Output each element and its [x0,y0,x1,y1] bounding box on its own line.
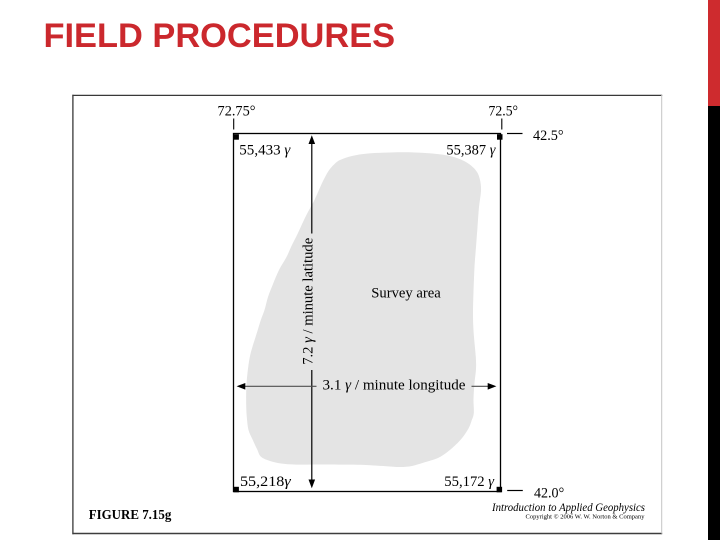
svg-text:FIGURE 7.15g: FIGURE 7.15g [89,507,172,522]
svg-text:55,387 γ: 55,387 γ [446,142,496,159]
svg-text:FIELD PROCEDURES: FIELD PROCEDURES [44,17,396,55]
svg-text:55,218γ: 55,218γ [240,473,292,490]
svg-text:3.1 γ / minute longitude: 3.1 γ / minute longitude [323,377,466,394]
svg-text:Survey area: Survey area [371,285,441,302]
svg-text:Copyright © 2006 W. W. Norton: Copyright © 2006 W. W. Norton & Company [526,514,646,521]
svg-text:Introduction to Applied Geophy: Introduction to Applied Geophysics [491,501,645,514]
svg-text:42.5°: 42.5° [533,127,564,144]
svg-text:72.75°: 72.75° [218,103,256,120]
svg-text:7.2 γ / minute latitude: 7.2 γ / minute latitude [300,238,316,365]
svg-text:42.0°: 42.0° [534,485,564,502]
svg-text:55,172 γ: 55,172 γ [444,473,495,490]
svg-text:55,433 γ: 55,433 γ [239,142,291,159]
svg-text:72.5°: 72.5° [489,103,519,120]
